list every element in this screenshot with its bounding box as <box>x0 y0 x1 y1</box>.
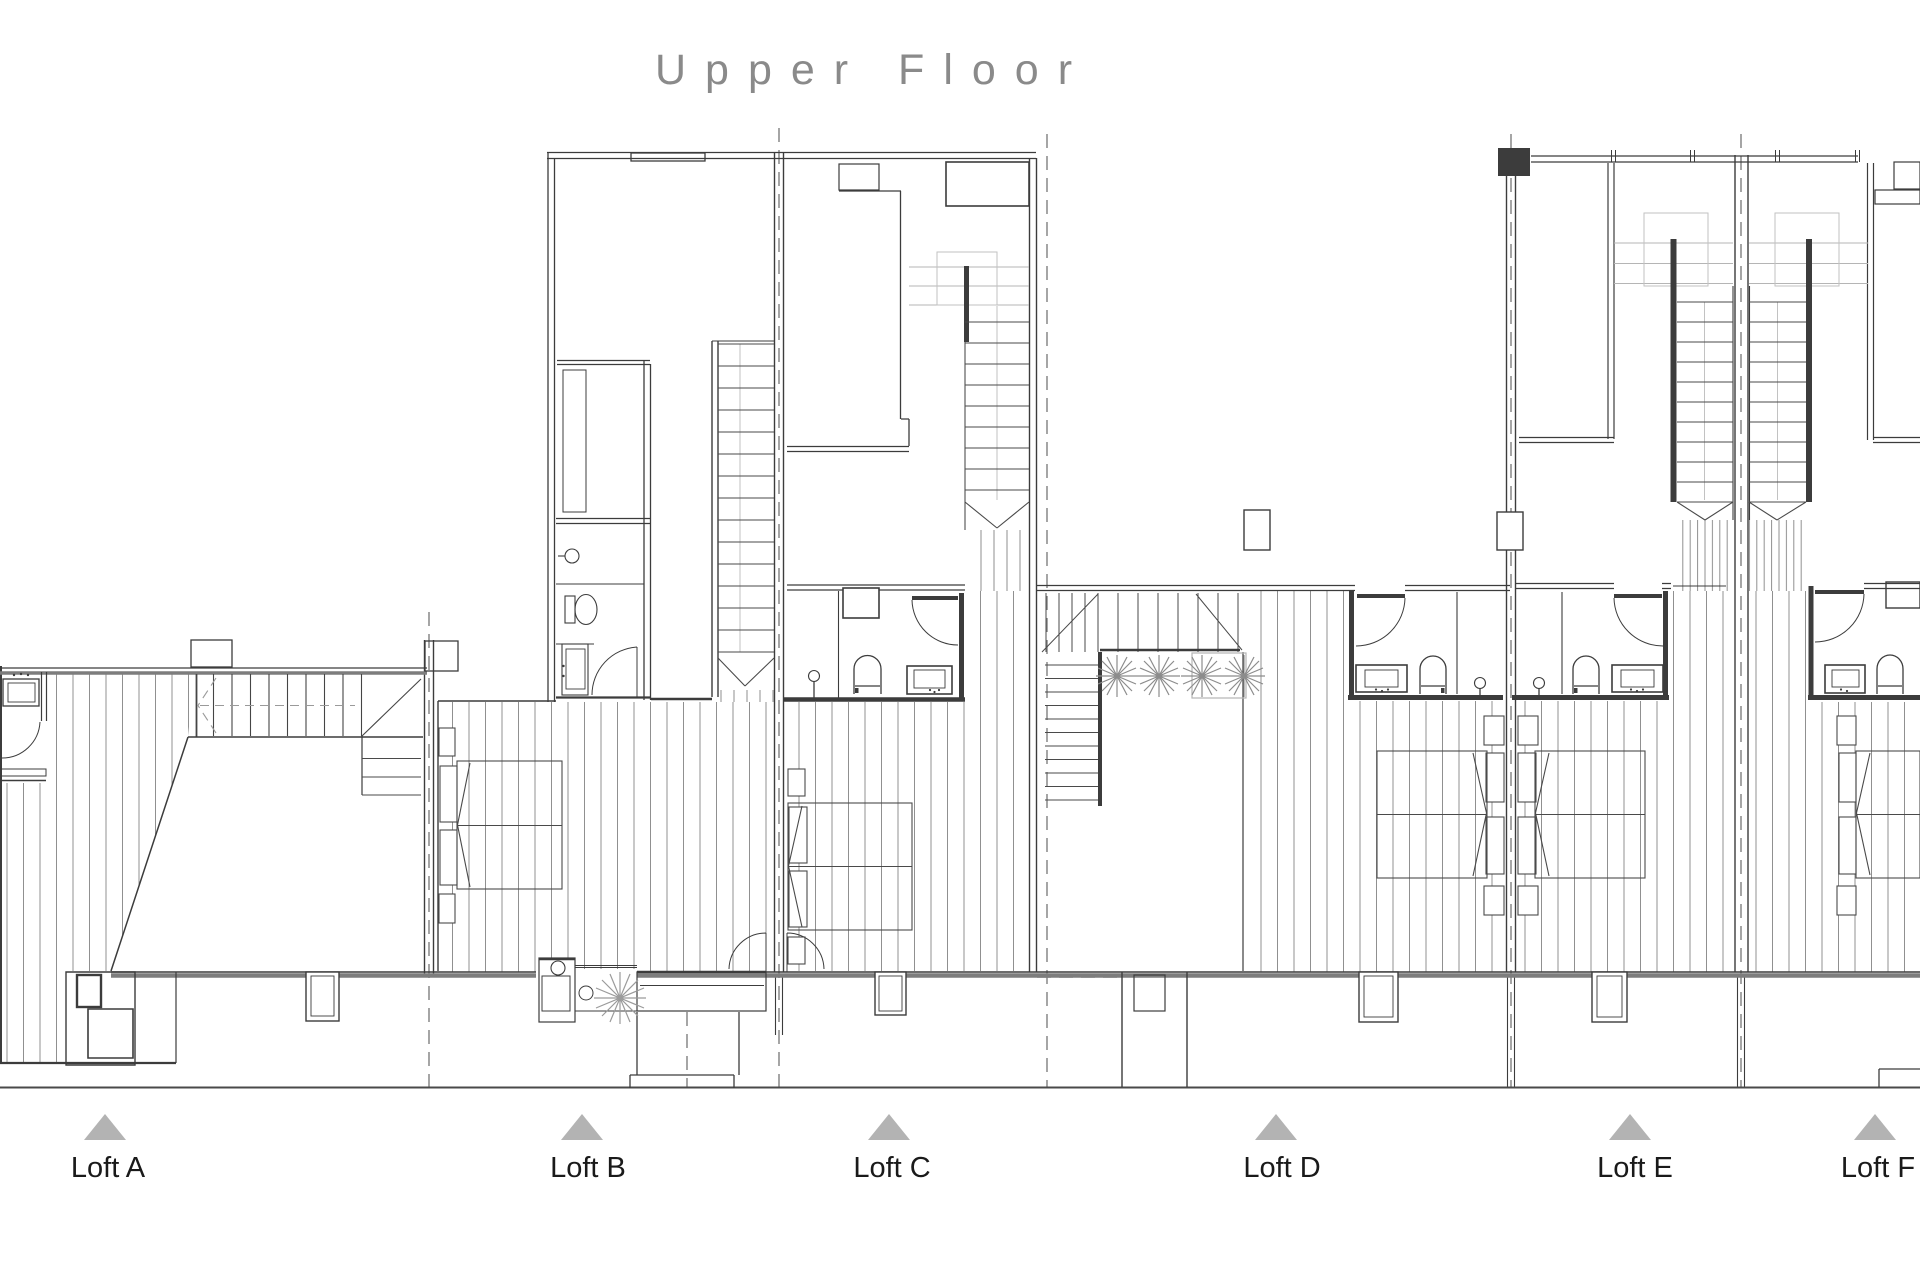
svg-text:Loft B: Loft B <box>550 1152 626 1184</box>
svg-text:Loft D: Loft D <box>1243 1152 1320 1184</box>
svg-text:Loft E: Loft E <box>1597 1152 1673 1184</box>
svg-text:Loft C: Loft C <box>853 1152 930 1184</box>
svg-text:Loft F: Loft F <box>1841 1152 1915 1184</box>
svg-text:Loft A: Loft A <box>71 1152 146 1184</box>
svg-text:Upper Floor: Upper Floor <box>655 46 1091 94</box>
